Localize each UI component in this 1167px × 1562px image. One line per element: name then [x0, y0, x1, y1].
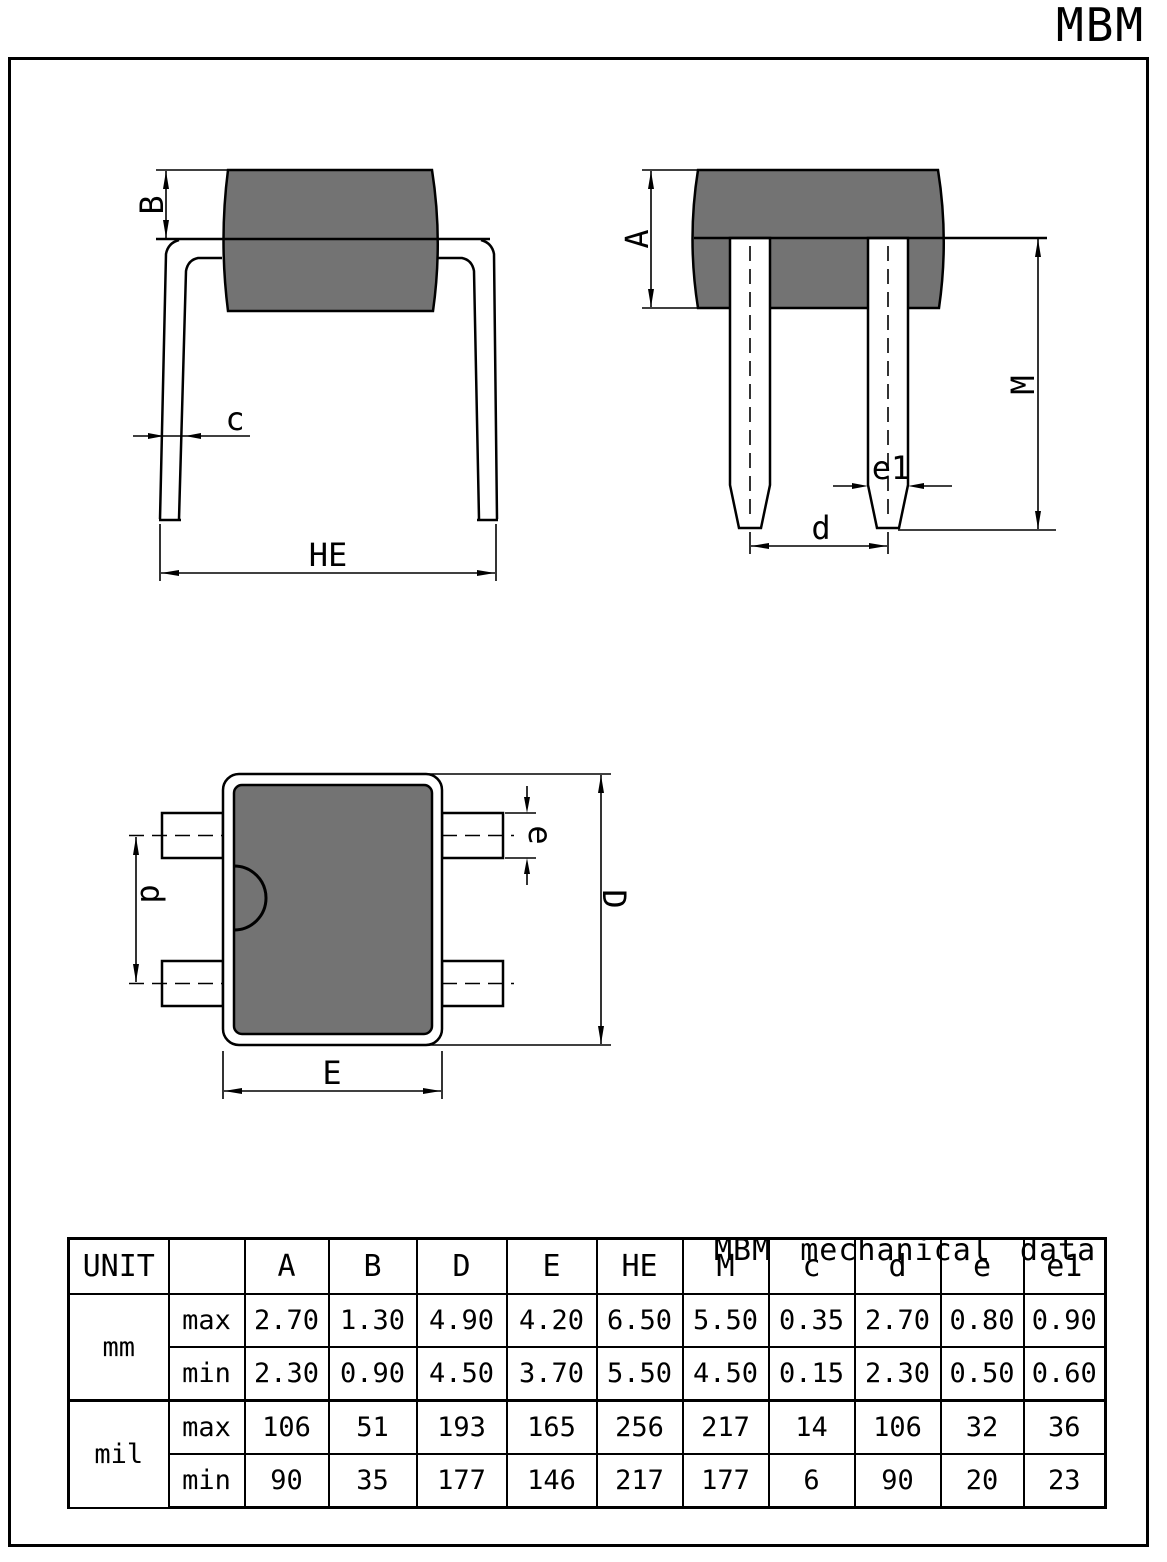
dim-c-arrow-right [185, 433, 201, 439]
cell: 35 [329, 1454, 417, 1508]
cell: 0.90 [329, 1347, 417, 1401]
front-left-leg-outer [160, 240, 179, 519]
header-c: c [769, 1239, 855, 1295]
dim-label-M: M [1004, 375, 1042, 394]
cell: 90 [245, 1454, 329, 1508]
dim-label-c: c [225, 400, 244, 438]
cell: 217 [597, 1454, 683, 1508]
front-left-leg-inner [179, 258, 222, 519]
header-D: D [417, 1239, 507, 1295]
table-row-mil-min: min 90 35 177 146 217 177 6 90 20 23 [69, 1454, 1106, 1508]
cell: 6 [769, 1454, 855, 1508]
cell: 36 [1024, 1401, 1106, 1455]
datasheet-page: MBM B c [0, 0, 1167, 1562]
dim-label-d-side: d [811, 509, 830, 547]
cell: 51 [329, 1401, 417, 1455]
header-e1: e1 [1024, 1239, 1106, 1295]
header-E: E [507, 1239, 597, 1295]
bound-mil-min: min [169, 1454, 245, 1508]
plan-view: d e D E [129, 774, 633, 1099]
cell: 4.50 [683, 1347, 769, 1401]
bound-mm-min: min [169, 1347, 245, 1401]
cell: 106 [245, 1401, 329, 1455]
cell: 165 [507, 1401, 597, 1455]
header-HE: HE [597, 1239, 683, 1295]
cell: 2.30 [855, 1347, 941, 1401]
cell: 2.70 [245, 1294, 329, 1347]
dim-label-e: e [521, 825, 559, 844]
cell: 3.70 [507, 1347, 597, 1401]
front-right-leg-outer [481, 240, 497, 519]
cell: 2.30 [245, 1347, 329, 1401]
cell: 0.90 [1024, 1294, 1106, 1347]
unit-mm: mm [69, 1294, 169, 1401]
cell: 217 [683, 1401, 769, 1455]
header-d: d [855, 1239, 941, 1295]
cell: 177 [683, 1454, 769, 1508]
cell: 177 [417, 1454, 507, 1508]
dim-label-HE: HE [309, 536, 348, 574]
cell: 0.35 [769, 1294, 855, 1347]
dim-label-E: E [322, 1054, 341, 1092]
side-view: A M e1 d [618, 170, 1056, 554]
header-M: M [683, 1239, 769, 1295]
front-view: B c HE [133, 170, 498, 581]
unit-mil: mil [69, 1401, 169, 1508]
cell: 256 [597, 1401, 683, 1455]
header-e: e [941, 1239, 1024, 1295]
bound-mm-max: max [169, 1294, 245, 1347]
cell: 4.50 [417, 1347, 507, 1401]
cell: 0.80 [941, 1294, 1024, 1347]
cell: 4.90 [417, 1294, 507, 1347]
dim-label-d-plan: d [133, 884, 171, 903]
cell: 0.15 [769, 1347, 855, 1401]
header-A: A [245, 1239, 329, 1295]
header-B: B [329, 1239, 417, 1295]
cell: 0.50 [941, 1347, 1024, 1401]
table-header-row: UNIT A B D E HE M c d e e1 [69, 1239, 1106, 1295]
table-row-mil-max: mil max 106 51 193 165 256 217 14 106 32… [69, 1401, 1106, 1455]
cell: 5.50 [597, 1347, 683, 1401]
cell: 2.70 [855, 1294, 941, 1347]
cell: 6.50 [597, 1294, 683, 1347]
header-unit: UNIT [69, 1239, 169, 1295]
bound-mil-max: max [169, 1401, 245, 1455]
mechanical-data-table: UNIT A B D E HE M c d e e1 mm max 2.70 1… [67, 1237, 1107, 1509]
table-row-mm-max: mm max 2.70 1.30 4.90 4.20 6.50 5.50 0.3… [69, 1294, 1106, 1347]
cell: 4.20 [507, 1294, 597, 1347]
cell: 14 [769, 1401, 855, 1455]
cell: 90 [855, 1454, 941, 1508]
dim-label-B: B [133, 195, 171, 214]
cell: 146 [507, 1454, 597, 1508]
plan-lead-bottom-left [162, 961, 223, 1006]
dim-label-D: D [595, 889, 633, 908]
dim-e-arrow-top [524, 797, 530, 813]
cell: 32 [941, 1401, 1024, 1455]
dim-e-arrow-bottom [524, 858, 530, 874]
cell: 1.30 [329, 1294, 417, 1347]
header-blank [169, 1239, 245, 1295]
dim-label-A: A [618, 229, 656, 248]
front-body [224, 170, 438, 311]
plan-lead-top-left [162, 813, 223, 858]
cell: 23 [1024, 1454, 1106, 1508]
cell: 106 [855, 1401, 941, 1455]
cell: 5.50 [683, 1294, 769, 1347]
dim-label-e1: e1 [872, 449, 911, 487]
cell: 20 [941, 1454, 1024, 1508]
dim-e1-arrow-left [852, 483, 868, 489]
cell: 193 [417, 1401, 507, 1455]
table-row-mm-min: min 2.30 0.90 4.50 3.70 5.50 4.50 0.15 2… [69, 1347, 1106, 1401]
dim-e1-arrow-right [908, 483, 924, 489]
cell: 0.60 [1024, 1347, 1106, 1401]
front-right-leg-inner [438, 258, 479, 519]
